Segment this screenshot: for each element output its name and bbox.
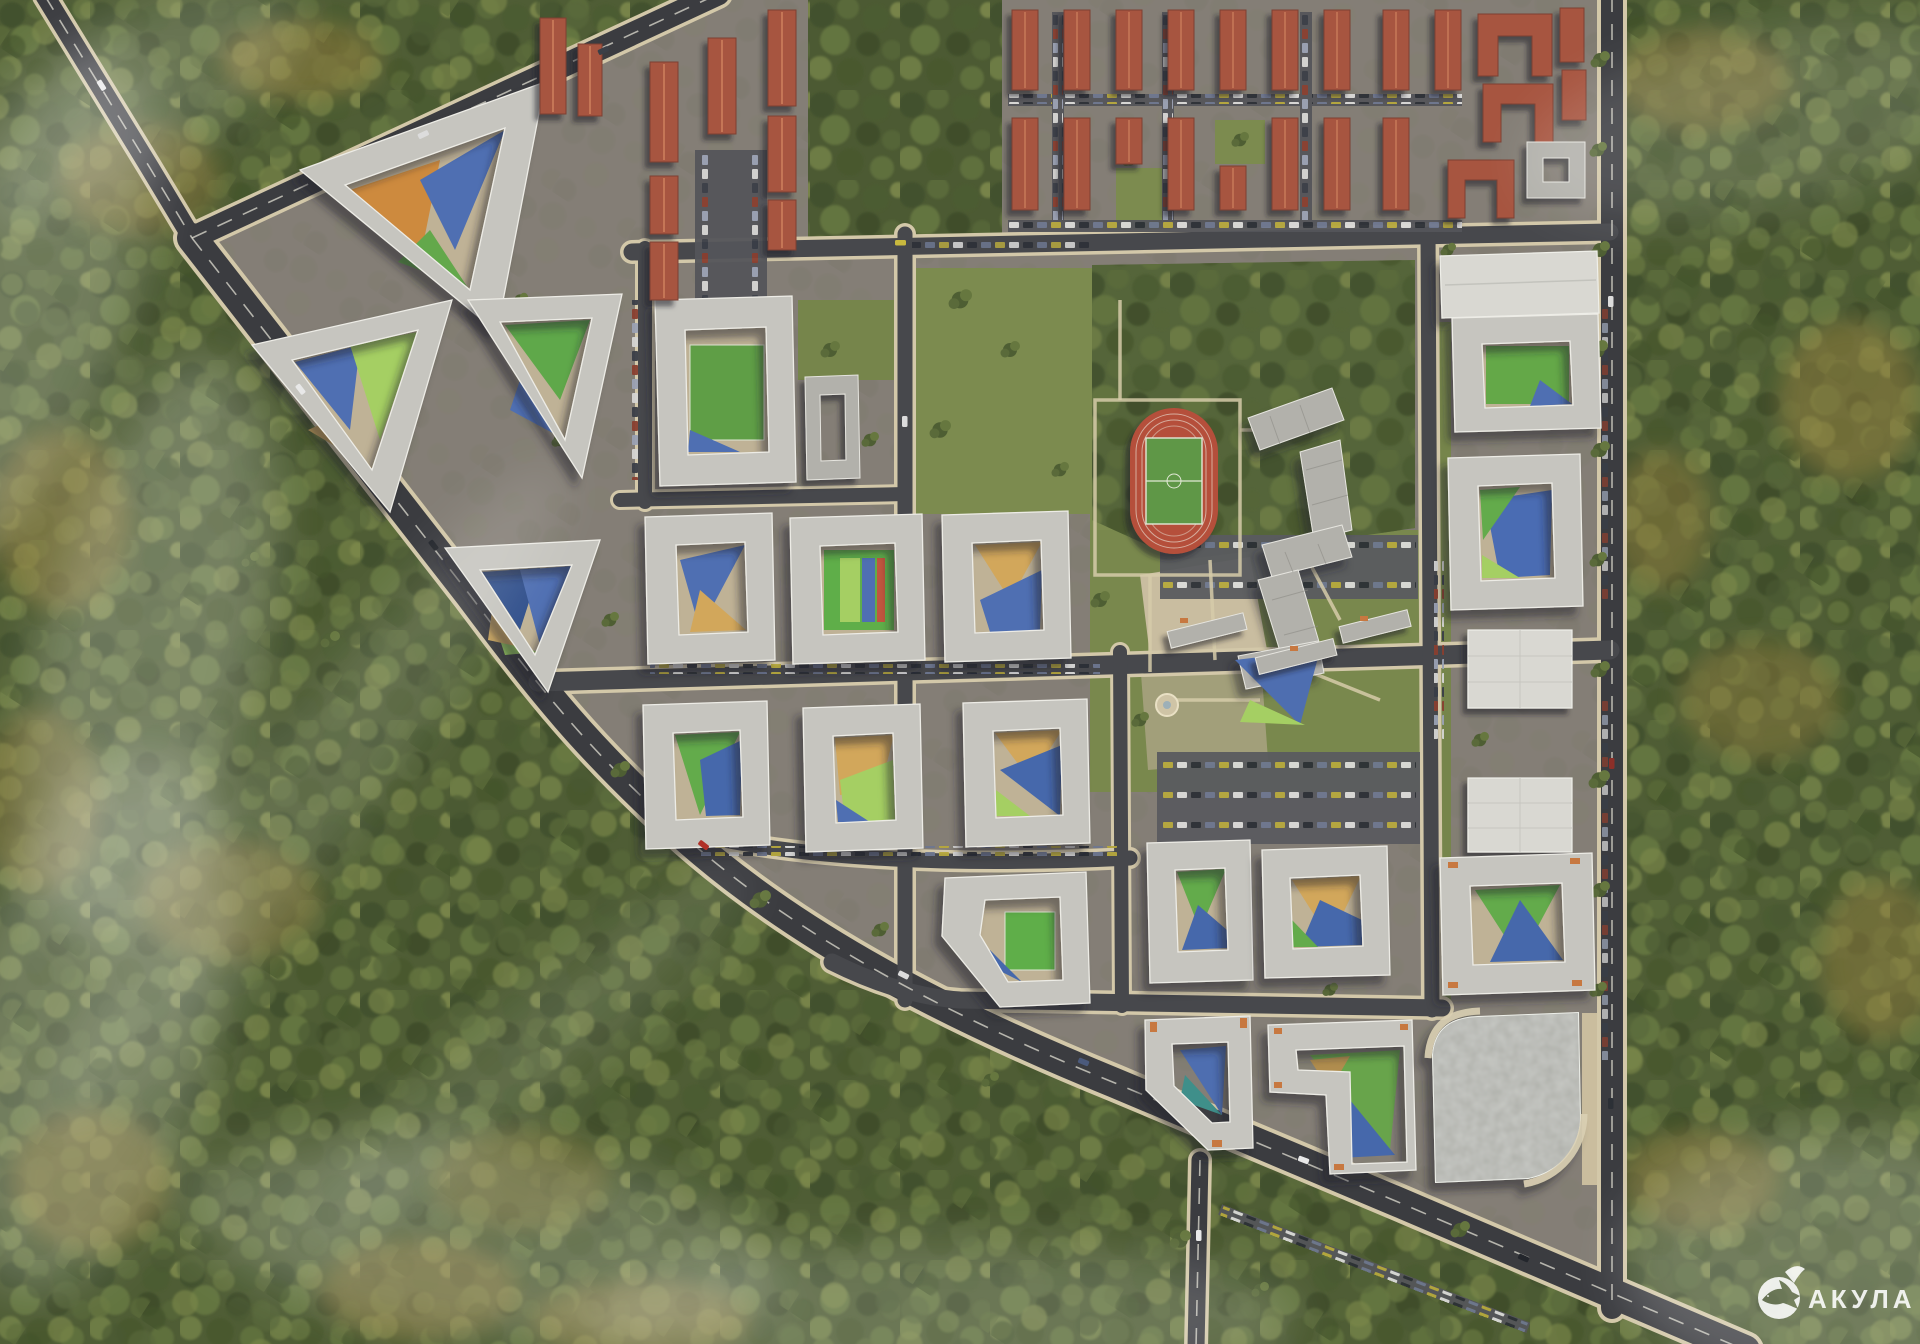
block-m6 — [963, 699, 1090, 847]
block-m1 — [645, 513, 775, 664]
masterplan-render: АКУЛА — [0, 0, 1920, 1344]
block-rb — [1448, 454, 1583, 610]
watermark-text: АКУЛА — [1808, 1284, 1916, 1314]
parking-garage — [1428, 1011, 1584, 1184]
masterplan-scene: АКУЛА — [0, 0, 1920, 1344]
stadium — [1130, 408, 1218, 554]
block-n1 — [1147, 840, 1253, 983]
block-m3 — [942, 511, 1071, 662]
parking-structure-1 — [1468, 630, 1572, 708]
white-retail-north — [1440, 251, 1599, 318]
block-n2 — [1262, 846, 1390, 978]
block-m5 — [803, 704, 923, 852]
townhouse-band-1 — [1012, 10, 1461, 90]
block-m4 — [643, 701, 770, 849]
parking-structure-2 — [1468, 778, 1572, 852]
block-m2-sport — [790, 514, 925, 664]
block-square-green — [655, 296, 796, 486]
block-rc — [1440, 853, 1595, 995]
block-ra — [1452, 314, 1601, 432]
fountain — [1156, 694, 1178, 716]
